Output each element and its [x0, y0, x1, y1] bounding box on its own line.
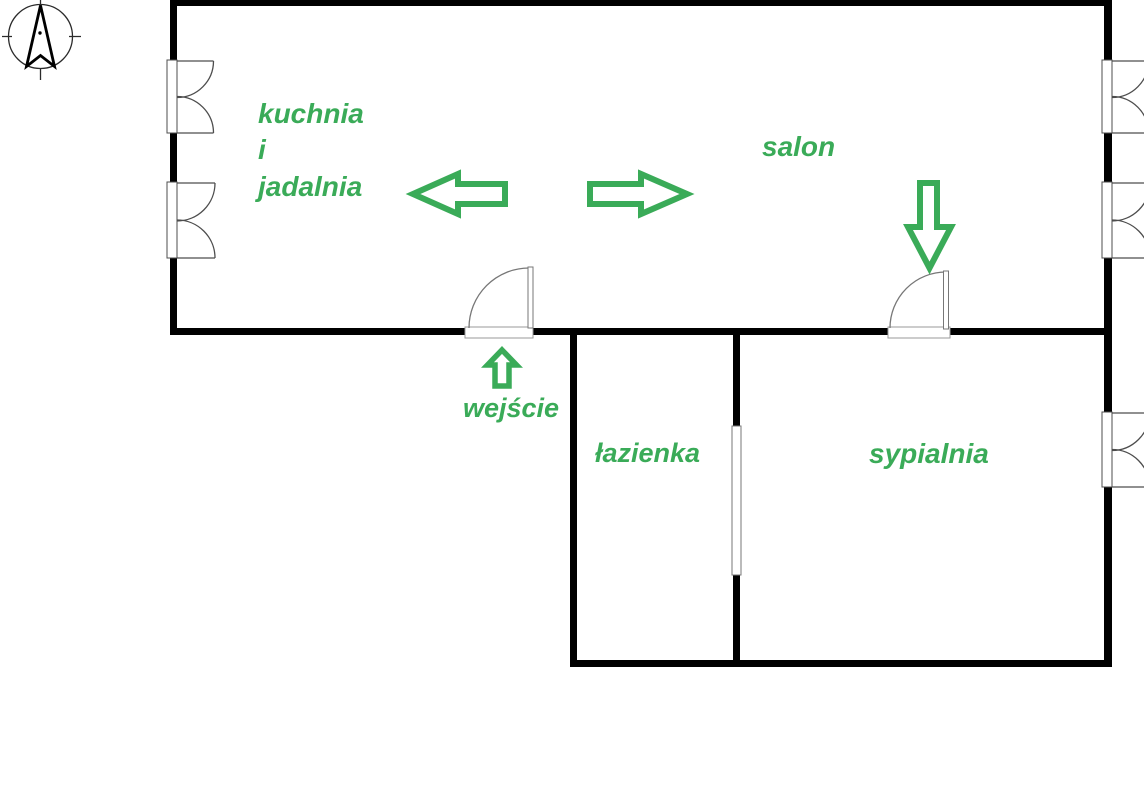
wall-middle-horizontal: [170, 328, 1112, 335]
window-kitchen-1: [167, 60, 214, 133]
window-kitchen-2: [167, 182, 215, 258]
room-label-lazienka: łazienka: [595, 438, 700, 468]
room-label-salon: salon: [762, 131, 835, 162]
entrance-door: [465, 267, 533, 338]
salon-door: [888, 271, 950, 338]
right-arrow-icon: [590, 174, 687, 214]
room-label-kuchnia-line3: jadalnia: [254, 171, 362, 202]
wall-bathroom-left: [570, 328, 577, 667]
room-label-kuchnia-line1: kuchnia: [258, 98, 364, 129]
wall-top: [170, 0, 1112, 6]
wall-left: [170, 0, 177, 335]
down-arrow-icon: [908, 183, 951, 268]
entrance-label: wejście: [463, 393, 559, 423]
room-label-sypialnia: sypialnia: [869, 438, 989, 469]
bathroom-bedroom-door: [732, 426, 741, 575]
floor-plan-drawing: kuchnia i jadalnia salon wejście łazienk…: [0, 0, 1144, 785]
left-arrow-icon: [413, 174, 505, 214]
north-needle-icon: [27, 6, 55, 67]
window-salon-2: [1102, 182, 1144, 258]
room-label-kuchnia-line2: i: [258, 134, 267, 165]
wall-bottom: [570, 660, 1112, 667]
room-labels: kuchnia i jadalnia salon wejście łazienk…: [254, 98, 989, 469]
window-bedroom: [1102, 412, 1144, 487]
floor-plan-canvas: kuchnia i jadalnia salon wejście łazienk…: [0, 0, 1144, 785]
window-salon-1: [1102, 60, 1144, 133]
up-arrow-icon: [488, 350, 517, 386]
north-compass-icon: [2, 0, 81, 80]
